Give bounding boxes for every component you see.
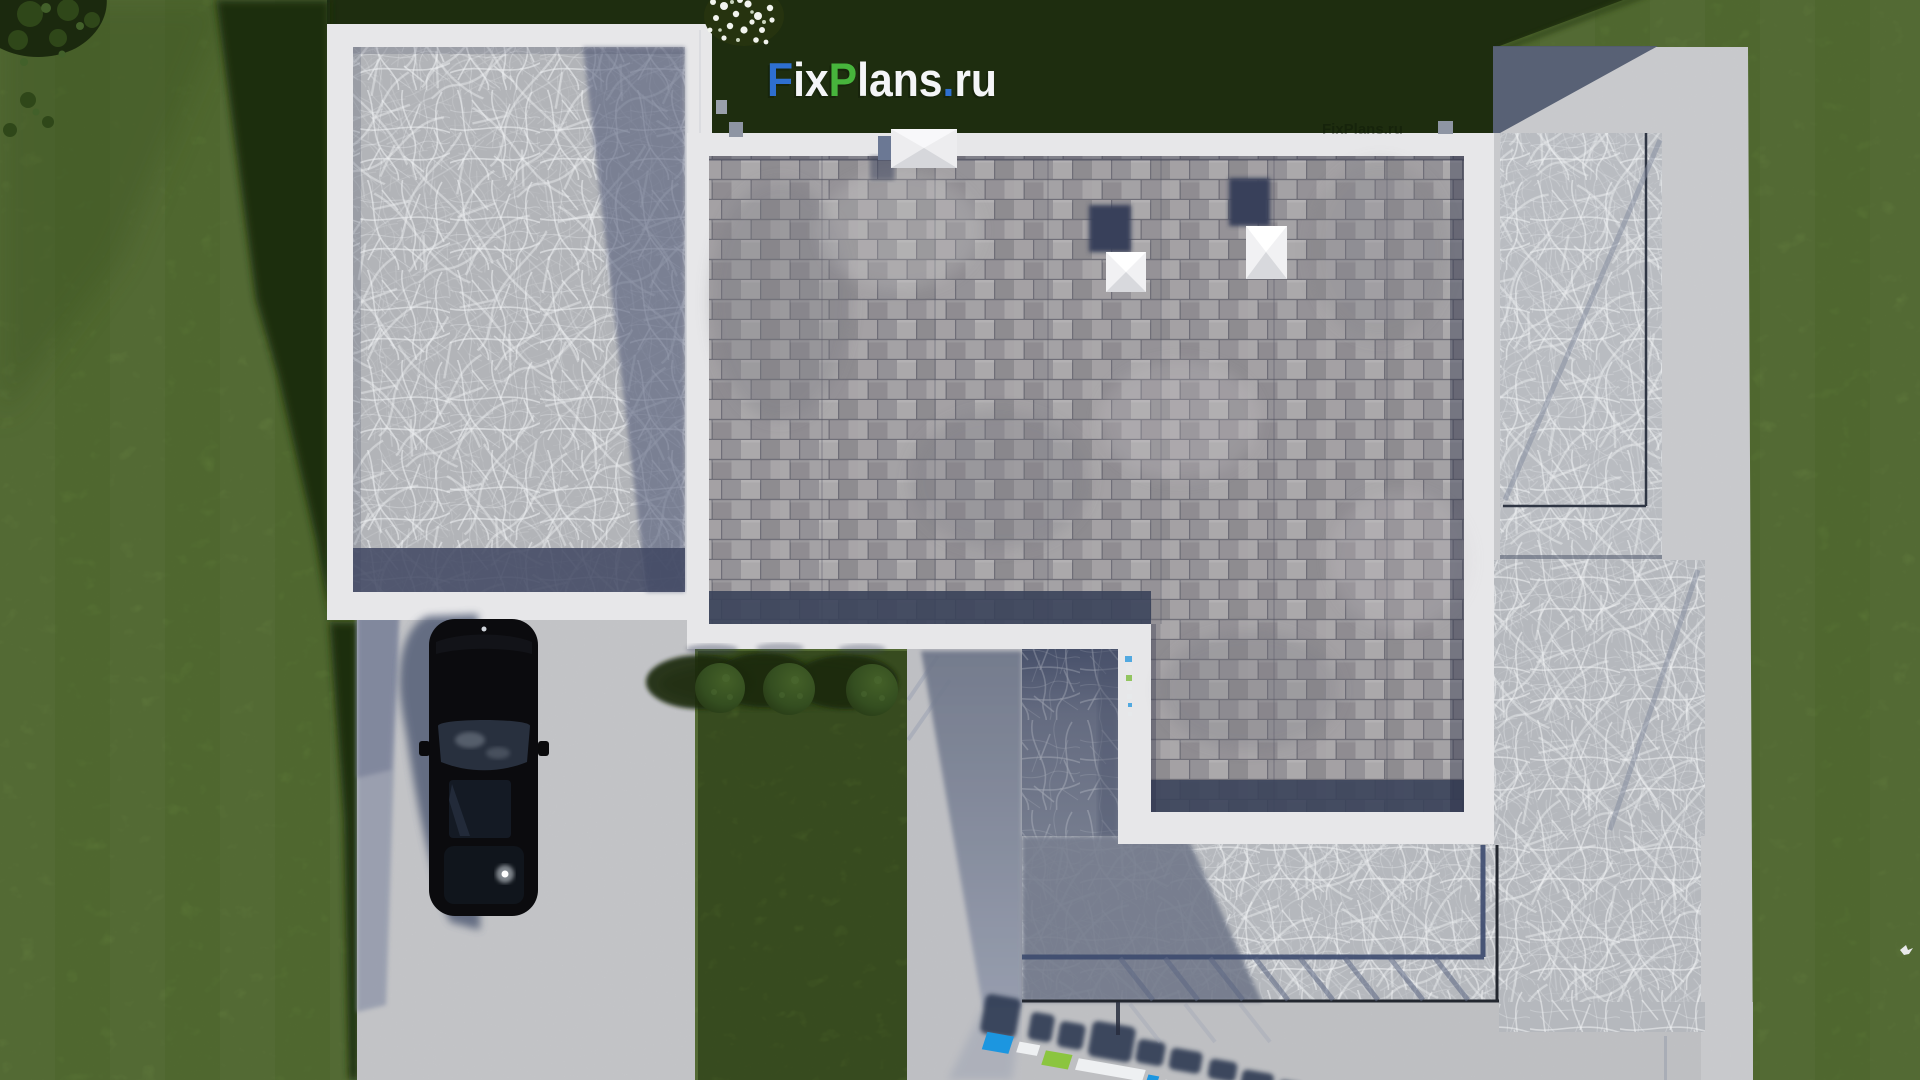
svg-text:FixPlans.ru: FixPlans.ru xyxy=(1322,121,1403,138)
svg-text:FixPlans.ru: FixPlans.ru xyxy=(767,53,997,106)
